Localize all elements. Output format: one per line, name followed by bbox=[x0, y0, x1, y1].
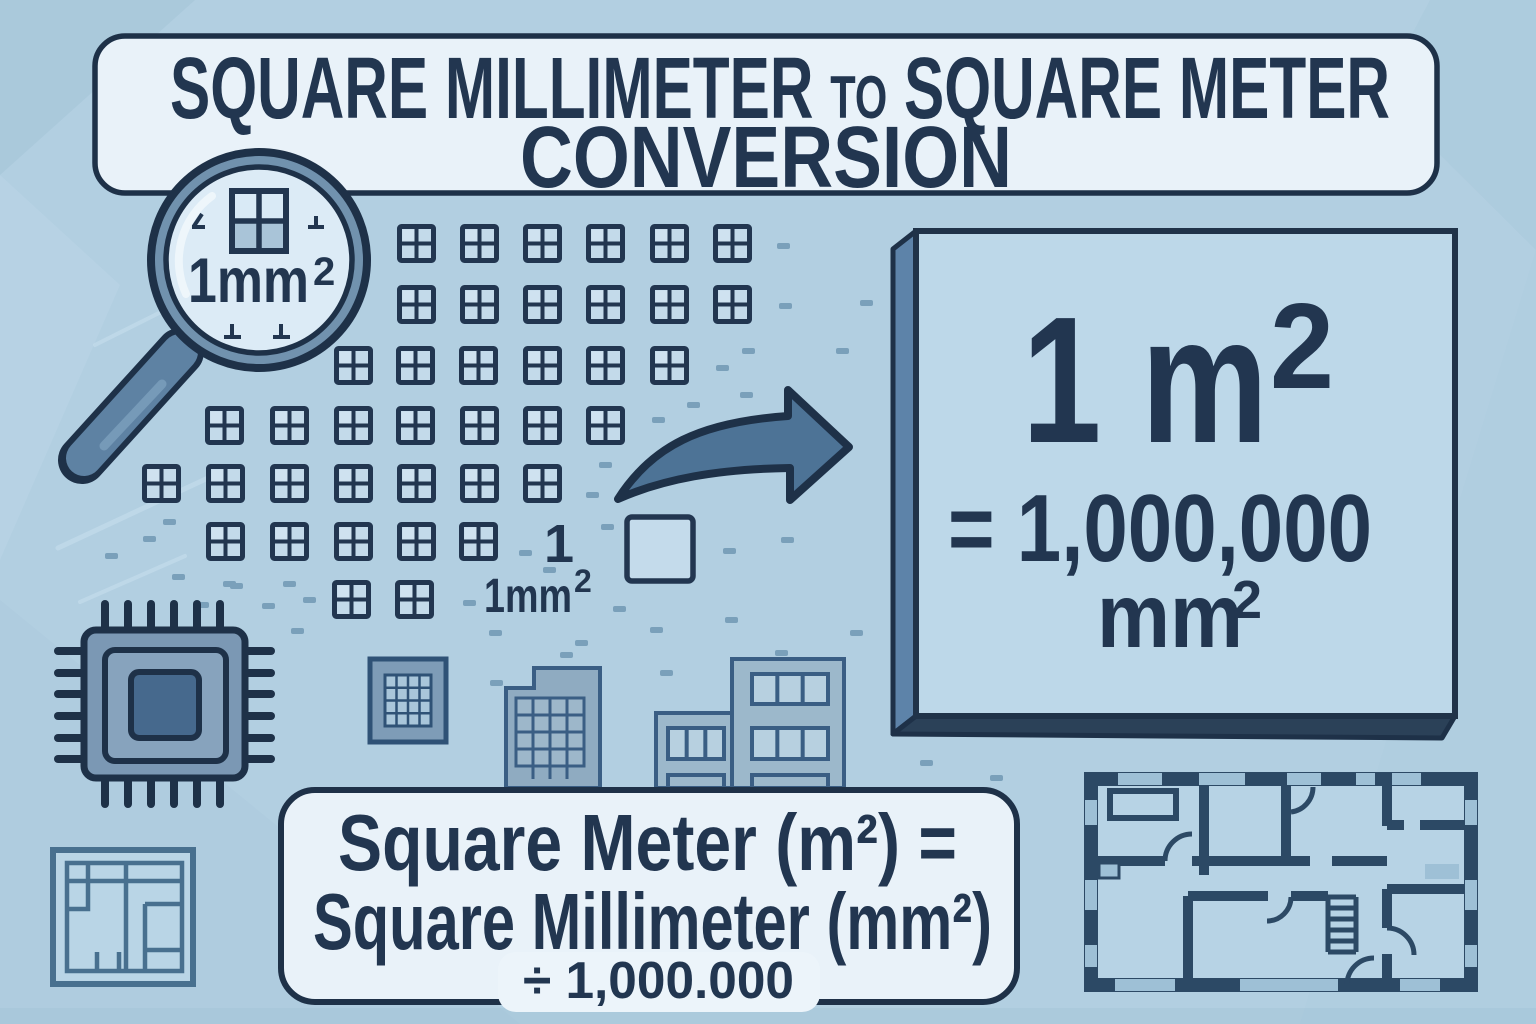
svg-text:1: 1 bbox=[544, 514, 574, 574]
svg-text:1mm: 1mm bbox=[484, 570, 572, 623]
svg-text:1mm: 1mm bbox=[188, 246, 309, 316]
svg-text:mm: mm bbox=[1097, 566, 1243, 667]
svg-text:2: 2 bbox=[574, 563, 592, 599]
svg-text:2: 2 bbox=[313, 250, 335, 294]
svg-text:CONVERSION: CONVERSION bbox=[520, 109, 1012, 206]
svg-text:2: 2 bbox=[1232, 570, 1262, 630]
svg-text:1 m: 1 m bbox=[1022, 280, 1268, 481]
svg-text:Square Meter (m²) =: Square Meter (m²) = bbox=[338, 798, 957, 887]
svg-text:2: 2 bbox=[1270, 278, 1334, 414]
svg-text:÷ 1,000.000: ÷ 1,000.000 bbox=[523, 952, 794, 1010]
